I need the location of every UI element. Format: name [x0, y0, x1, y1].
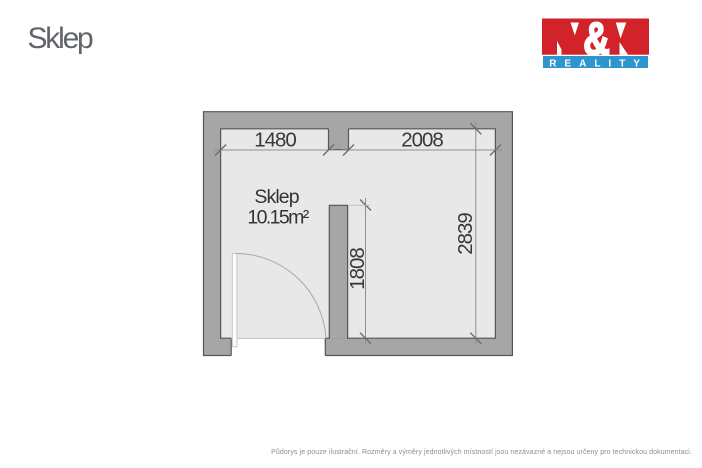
svg-text:Sklep: Sklep [254, 186, 299, 208]
svg-text:1480: 1480 [254, 128, 296, 151]
svg-text:10.15m²: 10.15m² [247, 206, 309, 228]
svg-text:2839: 2839 [454, 213, 477, 255]
svg-text:1808: 1808 [346, 248, 369, 290]
svg-text:2008: 2008 [401, 128, 443, 151]
